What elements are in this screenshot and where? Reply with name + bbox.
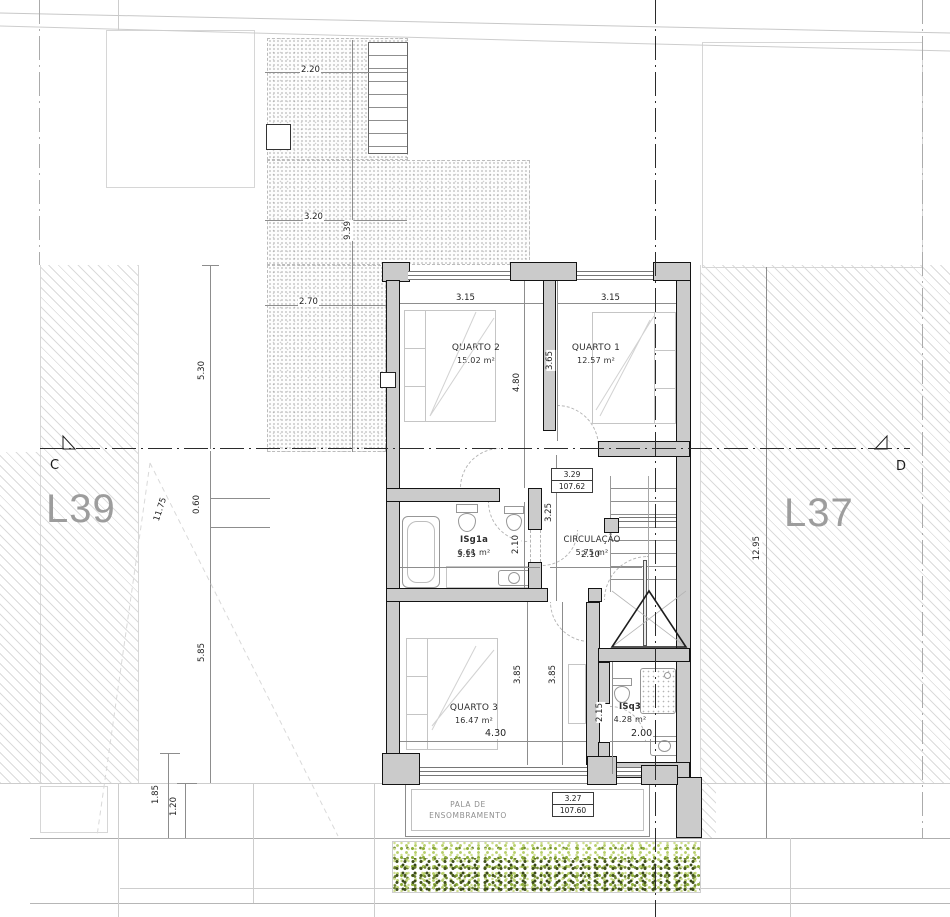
room-label-isq3: ISq3 4.28 m²	[601, 702, 659, 725]
sink-basin	[508, 572, 520, 584]
site-line	[700, 783, 950, 784]
wall-left	[386, 280, 400, 758]
level-elevation: 107.60	[553, 805, 593, 816]
wall-right-lower	[676, 777, 702, 838]
dim-line	[210, 527, 211, 783]
room-area: 6.61 m²	[434, 547, 514, 558]
dim-site-lower: 5.85	[198, 642, 207, 663]
wall-q3-door-stub	[588, 588, 602, 602]
dim-site-porch2: 1.20	[170, 796, 179, 817]
porch-label-line1: PALA DE	[412, 799, 524, 810]
dim-court-low: 2.70	[298, 298, 319, 307]
window-small-left	[380, 372, 396, 388]
courtyard-post	[266, 124, 291, 150]
wall-stair-isq3	[598, 648, 690, 662]
site-line	[253, 783, 254, 903]
dim-line	[610, 741, 676, 742]
dim-site-total: 11.75	[153, 496, 170, 524]
room-name: QUARTO 3	[424, 702, 524, 715]
dim-court-top: 2.20	[300, 66, 321, 75]
dim-tick	[202, 265, 219, 266]
site-line	[0, 783, 410, 784]
dim-line	[550, 567, 642, 568]
dim-line	[265, 220, 407, 221]
dim-tick	[210, 527, 270, 528]
stair-center-line	[648, 476, 649, 592]
lot-l37-hatch	[700, 265, 950, 838]
dim-court-mid: 3.20	[303, 213, 324, 222]
site-line	[118, 783, 119, 917]
room-area: 12.57 m²	[546, 355, 646, 366]
room-area: 16.47 m²	[424, 715, 524, 726]
dim-tick	[177, 783, 197, 784]
porch-label-line2: ENSOMBRAMENTO	[412, 810, 524, 821]
bed-quarto3-pillows	[406, 638, 428, 750]
dim-isq3-width: 2.00	[630, 729, 653, 739]
room-name: CIRCULAÇÃO	[544, 535, 640, 547]
door-gap-line	[540, 530, 541, 562]
dim-q2-width: 3.15	[455, 294, 476, 303]
dim-tick	[210, 498, 270, 499]
courtyard-paving-lower	[267, 265, 386, 452]
wall-bath-bottom	[386, 588, 548, 602]
lot-l39-hatch-edge	[0, 452, 40, 783]
wall-bottom-pier-left	[382, 753, 420, 785]
wall-q2-bottom	[386, 488, 500, 502]
dim-line	[265, 305, 386, 306]
dim-tick	[160, 753, 180, 754]
dim-q3-depth-b: 3.85	[549, 664, 558, 685]
dim-line	[766, 267, 767, 838]
hedge-shadow	[393, 858, 700, 892]
level-elevation: 107.62	[552, 481, 592, 492]
dim-hall-depth: 3.25	[545, 502, 554, 523]
circulation-column	[604, 518, 619, 533]
dim-line	[210, 265, 211, 449]
lot-boundary-left	[39, 0, 40, 265]
room-name: ISg1a	[434, 535, 514, 547]
left-courtyard-outline	[106, 30, 255, 188]
dim-line	[168, 753, 169, 838]
wall-isq3-left-a	[598, 662, 610, 704]
dim-line	[352, 40, 353, 452]
door-gap-line	[530, 530, 531, 562]
dim-q3-width: 4.30	[484, 729, 507, 739]
room-area: 15.02 m²	[426, 355, 526, 366]
dim-line	[524, 281, 525, 488]
lot-label-l37: L37	[784, 491, 854, 536]
bed-quarto2-pillows	[404, 310, 426, 422]
level-marker-floor: 3.29 107.62	[551, 468, 593, 493]
room-label-quarto1: QUARTO 1 12.57 m²	[546, 342, 646, 366]
room-label-isg1a: ISg1a 6.61 m²	[434, 535, 514, 558]
toilet-bowl	[458, 513, 476, 532]
floor-plan-canvas: 2.20 3.20 2.70 9.39 3.15 3.15 4.80 3.65 …	[0, 0, 950, 917]
dim-court-depth: 9.39	[344, 220, 353, 241]
dim-site-step: 0.60	[193, 494, 202, 515]
room-name: ISq3	[601, 702, 659, 714]
dim-site-porch: 1.85	[152, 784, 161, 805]
dim-line	[265, 72, 407, 73]
terrace-outline	[40, 786, 108, 833]
door-arc-quarto3	[550, 602, 590, 642]
room-area: 4.28 m²	[601, 714, 659, 725]
room-label-circulacao: CIRCULAÇÃO 5.75 m²	[544, 535, 640, 558]
section-letter-d: D	[896, 459, 906, 474]
toilet-isq3	[612, 678, 632, 686]
boundary-tick	[118, 0, 119, 30]
site-line	[30, 903, 950, 904]
bathtub-inner	[407, 521, 435, 583]
dim-line	[185, 783, 186, 838]
door-arc-quarto2	[460, 448, 500, 488]
dim-q2-depth: 4.80	[513, 372, 522, 393]
room-label-quarto2: QUARTO 2 15.02 m²	[426, 342, 526, 366]
wall-top-left	[382, 262, 410, 282]
site-line	[30, 838, 950, 839]
wall-hall-upper	[528, 488, 542, 530]
dim-site-right: 12.95	[753, 535, 762, 561]
room-name: QUARTO 1	[546, 342, 646, 355]
level-height: 3.27	[553, 793, 593, 805]
window-quarto3	[420, 767, 587, 776]
porch-label: PALA DE ENSOMBRAMENTO	[412, 799, 524, 822]
exterior-stairs	[368, 42, 408, 154]
dim-line	[400, 741, 586, 742]
lot-l37-cutout	[716, 783, 950, 838]
lot-boundary-right	[922, 0, 923, 838]
site-line	[374, 783, 375, 917]
dim-line	[210, 451, 211, 527]
window-quarto1	[577, 271, 653, 280]
wall-right	[676, 280, 691, 777]
toilet-isq3-bowl	[614, 686, 630, 703]
dim-q3-depth-a: 3.85	[514, 664, 523, 685]
wall-top-mid-pier	[510, 262, 577, 281]
toilet	[456, 504, 478, 513]
dim-site-upper: 5.30	[198, 360, 207, 381]
wardrobe-quarto3	[568, 664, 586, 724]
section-letter-c: C	[50, 458, 59, 473]
window-quarto2	[408, 271, 510, 280]
bed-quarto1-pillows	[654, 312, 676, 424]
wall-bottom-pier-right	[641, 765, 678, 785]
dim-line	[524, 502, 525, 588]
level-marker-porch: 3.27 107.60	[552, 792, 594, 817]
room-label-quarto3: QUARTO 3 16.47 m²	[424, 702, 524, 726]
shower-drain	[664, 672, 671, 679]
dim-line	[400, 567, 540, 568]
window-isq3	[617, 767, 641, 776]
section-line-cd	[40, 448, 910, 449]
room-area: 5.75 m²	[544, 547, 640, 558]
lot-label-l39: L39	[46, 487, 116, 532]
wall-top-right-pier	[653, 262, 691, 281]
party-wall-axis	[655, 0, 656, 917]
site-line	[790, 838, 791, 917]
right-courtyard-outline	[702, 42, 923, 268]
dim-q1-width: 3.15	[600, 294, 621, 303]
level-height: 3.29	[552, 469, 592, 481]
room-name: QUARTO 2	[426, 342, 526, 355]
